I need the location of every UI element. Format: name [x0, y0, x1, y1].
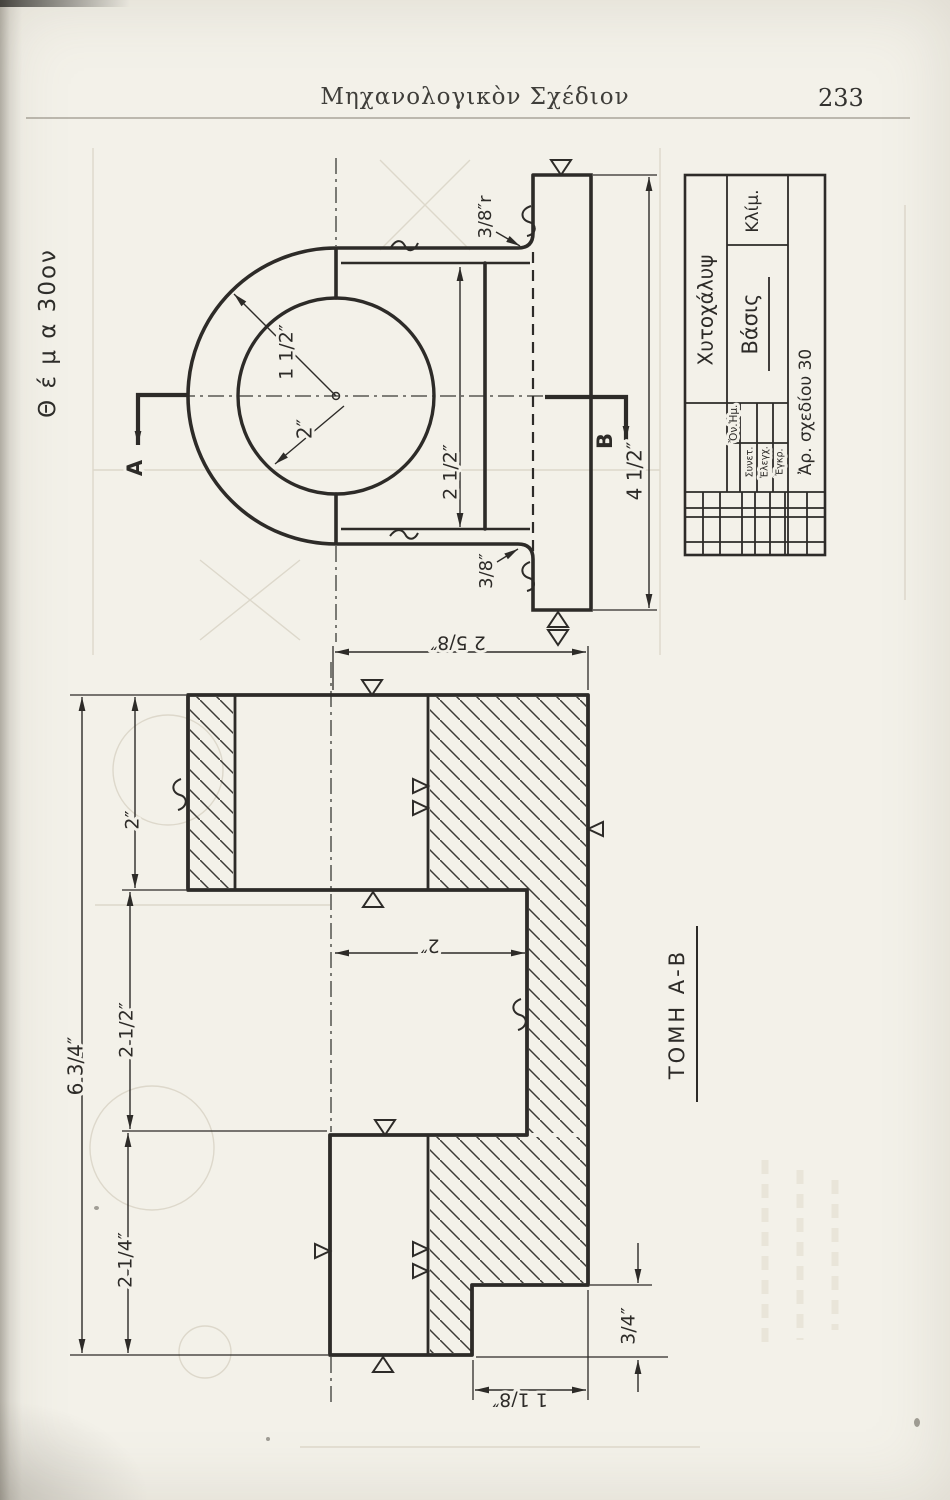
cutting-plane-a [138, 395, 187, 445]
ghost-circle [90, 1086, 214, 1210]
dim-total-height: 6 3/4″ [64, 1037, 88, 1096]
hatch-area-right [430, 697, 586, 1133]
front-view: A B 1 1/2″ 2″ 2 1/2″ 3/8″r 3/8″ 4 1/2″ [123, 158, 657, 642]
plate-length-ext-lines [593, 175, 657, 610]
page-corner-shadow [0, 1400, 150, 1500]
dim-plate-length: 4 1/2″ [623, 442, 647, 501]
ghost-text-smudge [765, 1160, 835, 1350]
dim-web: 2″ [420, 935, 439, 957]
ghost-circle [179, 1326, 231, 1378]
dim-radius: 1 1/2″ [276, 324, 298, 380]
book-page: A B 1 1/2″ 2″ 2 1/2″ 3/8″r 3/8″ 4 1/2″ [0, 0, 950, 1500]
sig-row-checked: Ἐλεγχ. [760, 446, 771, 478]
hatch-area-left [190, 697, 233, 888]
cut-letter-a: A [123, 459, 147, 476]
finish-triangle-icon [362, 680, 382, 695]
scale-label: Κλίμ. [743, 189, 763, 232]
dim-fillet-top: 3/8″r [475, 195, 496, 239]
book-gutter-shadow [0, 0, 22, 1500]
scan-speck [94, 1206, 99, 1210]
header-rule [26, 117, 910, 119]
fillet-bottom-leader [497, 549, 518, 562]
theme-label: Θ έ μ α 30ον [33, 203, 63, 463]
sig-row-approved: Ἐγκρ. [775, 448, 786, 475]
finish-triangle-icon [548, 612, 568, 627]
dim-depth: 2 1/2″ [440, 444, 462, 500]
page-header-title: Μηχανολογικὸν Σχέδιον [0, 84, 950, 110]
finish-marks-front [548, 160, 571, 627]
part-name: Βάσις [738, 294, 762, 355]
sig-row-drawn: Συνετ. [745, 447, 756, 478]
dim-fillet-bottom: 3/8″ [476, 553, 497, 589]
finish-triangle-icon [588, 822, 603, 836]
dim-seg-bottom: 2 1/4″ [115, 1232, 137, 1288]
finish-triangle-icon [413, 1264, 428, 1278]
page-number: 233 [818, 84, 864, 112]
drawing-number: Ἀρ. σχεδίου 30 [796, 349, 816, 475]
finish-triangle-icon [315, 1244, 330, 1258]
sig-col-date: Ἡμ. [728, 405, 740, 424]
finish-triangle-icon [413, 779, 428, 793]
finish-triangle-icon [413, 801, 428, 815]
scan-speck [914, 1418, 920, 1427]
finish-triangle-icon [363, 892, 383, 907]
engineering-drawing: A B 1 1/2″ 2″ 2 1/2″ 3/8″r 3/8″ 4 1/2″ [0, 0, 950, 1500]
section-view: 2 5/8″ 2″ 6 3/4″ 2″ 2 1/2″ 2 1/4″ 3/4″ 1… [64, 630, 698, 1411]
center-lines [150, 158, 628, 642]
scan-edge-artifact [0, 0, 130, 7]
finish-triangle-icon [548, 630, 568, 645]
title-block: Χυτοχάλυψ Κλίμ. Βάσις Ἀρ. σχεδίου 30 Ἡμ.… [685, 175, 825, 555]
sig-col-name: Ὄν. [728, 423, 740, 442]
material-label: Χυτοχάλυψ [694, 255, 718, 366]
section-title: ΤΟΜΗ Α-Β [665, 949, 689, 1080]
scan-speck [266, 1437, 270, 1441]
dim-top-width: 2 5/8″ [430, 632, 486, 654]
cut-letter-b: B [593, 433, 617, 449]
finish-triangle-icon [373, 1357, 393, 1372]
dim-bore: 2″ [293, 419, 317, 439]
dim-seg-top: 2″ [122, 810, 144, 829]
dim-seg-mid: 2 1/2″ [116, 1002, 138, 1058]
dim-foot-height: 3/4″ [618, 1307, 640, 1345]
finish-triangle-icon [375, 1120, 395, 1135]
finish-triangle-icon [551, 160, 571, 175]
fillet-top-leader [496, 232, 520, 246]
dim-foot-width: 1 1/8″ [492, 1389, 548, 1411]
hatch-area-base [430, 1137, 586, 1353]
finish-triangle-icon [413, 1242, 428, 1256]
